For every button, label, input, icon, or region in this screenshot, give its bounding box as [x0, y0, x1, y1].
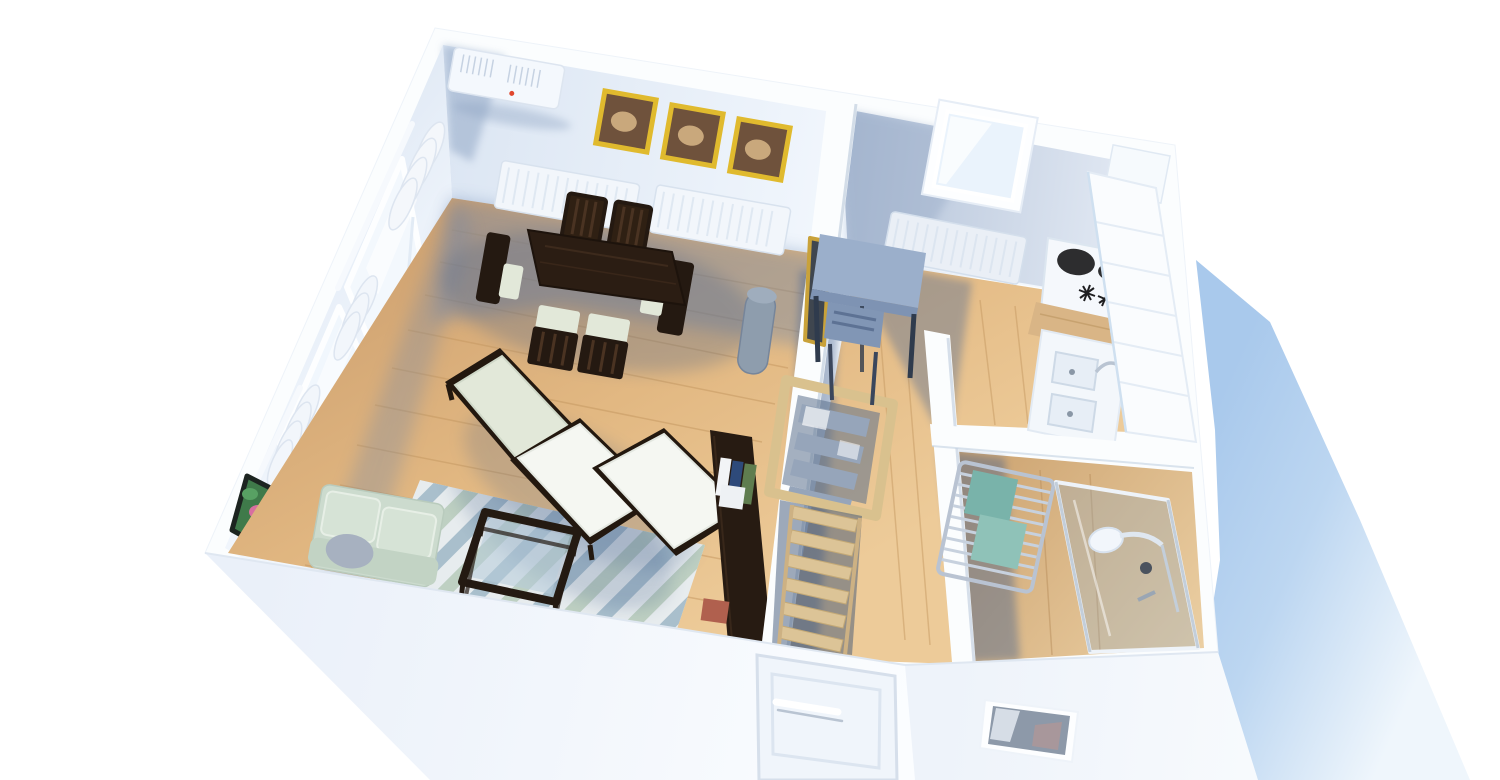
framed-picture-2 [663, 105, 723, 166]
sink-basin-1 [1052, 352, 1098, 390]
books [715, 457, 756, 509]
warm-reflection [1032, 722, 1062, 750]
chaise-leg [590, 545, 592, 560]
framed-picture-3 [730, 119, 790, 180]
shower-valve [1140, 562, 1152, 574]
drain [1067, 411, 1073, 417]
kitchen-window [922, 100, 1038, 213]
teal-towel-2 [970, 514, 1027, 569]
front-door [757, 655, 897, 780]
south-wall-right-face [905, 652, 1258, 780]
white-box [719, 484, 746, 509]
red-storage-box [701, 598, 730, 623]
desk-leg [816, 296, 818, 362]
render-viewport: 3D aerial cutaway rendering of a one-bed… [0, 0, 1500, 780]
framed-picture-1 [596, 91, 656, 152]
chair-leg [830, 344, 832, 400]
drain [1069, 369, 1075, 375]
teal-towel-1 [964, 470, 1018, 523]
floorplan-3d-canvas[interactable]: 3D aerial cutaway rendering of a one-bed… [0, 0, 1500, 780]
